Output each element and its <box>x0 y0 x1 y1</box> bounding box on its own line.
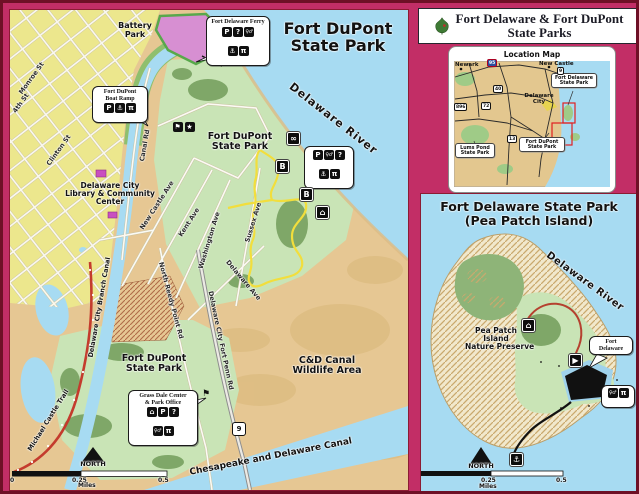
fort-facilities-box: ♀♂π <box>601 385 635 408</box>
fort-callout-line2: Delaware <box>591 346 631 353</box>
scale-05: 0.5 <box>158 478 169 484</box>
wildlife-line2: Wildlife Area <box>282 366 372 376</box>
loc-shield-40: 40 <box>493 85 503 93</box>
restroom-icon: ♀♂ <box>608 388 618 398</box>
ferry-callout-title: Fort Delaware Ferry <box>209 19 267 26</box>
trail-marker-b: B <box>276 160 289 173</box>
info-icon: ? <box>233 27 243 37</box>
historic-site-icons: ⚑★ <box>172 121 195 132</box>
shore-facilities-row2: ⚓π <box>307 168 351 187</box>
loc-label-newark: Newark <box>455 62 479 68</box>
loc-fdu-line1: Fort DuPont <box>521 140 563 145</box>
parking-icon: P <box>104 103 114 113</box>
boat-ramp-icon: ⚓ <box>115 103 125 113</box>
picnic-icon: π <box>239 46 249 56</box>
star-icon: ★ <box>185 122 195 132</box>
picnic-icon: π <box>330 169 340 179</box>
loc-fd-line2: State Park <box>553 81 595 86</box>
scale-bar <box>12 471 167 477</box>
library-label: Delaware City Library & Community Center <box>62 182 158 206</box>
shore-facilities-callout: P♀♂? ⚓π <box>304 146 354 189</box>
loc-label-new-castle: New Castle <box>539 61 574 67</box>
route-9-shield: 9 <box>232 422 246 436</box>
parking-icon: P <box>313 150 323 160</box>
loc-shield-72: 72 <box>481 102 491 110</box>
parking-icon: P <box>222 27 232 37</box>
picnic-icon: π <box>126 103 136 113</box>
parking-icon: P <box>158 407 168 417</box>
info-icon: ? <box>169 407 179 417</box>
loc-fdu-line2: State Park <box>521 145 563 150</box>
park-label-upper: Fort DuPont State Park <box>202 132 278 153</box>
boat-launch-icon: ⚓ <box>319 169 329 179</box>
pea-title-line2: (Pea Patch Island) <box>421 214 637 228</box>
park-label-lower: Fort DuPont State Park <box>106 354 202 375</box>
loc-lums-line1: Lums Pond <box>457 146 493 151</box>
ferry-callout-icons-row1: P?♀♂ <box>209 26 267 45</box>
header-title-line1: Fort Delaware & Fort DuPont <box>456 12 624 26</box>
loc-shield-95: 95 <box>487 59 497 67</box>
shore-facilities-row1: P♀♂? <box>307 149 351 168</box>
restroom-icon: ♀♂ <box>324 150 334 160</box>
battery-park-line2: Park <box>114 31 156 40</box>
scale-0: 0 <box>10 478 14 484</box>
main-map-panel: Fort DuPont State Park Delaware River Ba… <box>9 9 409 491</box>
ferry-icon: ⚓ <box>228 46 238 56</box>
grass-dale-title-line1: Grass Dale Center <box>131 393 195 400</box>
restroom-icon: ♀♂ <box>244 27 254 37</box>
shelter-icon: ⌂ <box>522 319 535 332</box>
battery-park-label: Battery Park <box>114 22 156 39</box>
pea-patch-panel: Fort Delaware State Park (Pea Patch Isla… <box>420 193 638 492</box>
loc-label-delaware-city: Delaware City <box>521 93 557 105</box>
loc-fd-line1: Fort Delaware <box>553 76 595 81</box>
info-icon: ? <box>335 150 345 160</box>
scale-unit: Miles <box>78 483 96 489</box>
pea-title-line1: Fort Delaware State Park <box>421 200 637 214</box>
main-map-title: Fort DuPont State Park <box>268 20 408 55</box>
ferry-callout: Fort Delaware Ferry P?♀♂ ⚓π <box>206 16 270 66</box>
pea-title: Fort Delaware State Park (Pea Patch Isla… <box>421 200 637 227</box>
header-title-line2: State Parks <box>456 26 624 40</box>
restroom-icon: ♀♂ <box>153 426 163 436</box>
main-map-title-line1: Fort DuPont <box>268 20 408 37</box>
header-title: Fort Delaware & Fort DuPont State Parks <box>456 12 624 40</box>
state-park-leaf-icon <box>433 16 451 36</box>
park-lower-line2: State Park <box>106 364 202 374</box>
fort-site-icon: ⌂ <box>316 206 329 219</box>
fort-delaware-callout: Fort Delaware <box>589 336 633 355</box>
wildlife-area-label: C&D Canal Wildlife Area <box>282 356 372 377</box>
grass-dale-callout: Grass Dale Center & Park Office ⌂P? ♀♂π <box>128 390 198 446</box>
flag-icon: ⚑ <box>173 122 183 132</box>
grass-dale-icons-row2: ♀♂π <box>131 425 195 444</box>
loc-callout-lums-pond: Lums Pond State Park <box>455 143 495 158</box>
ferry-callout-icons-row2: ⚓π <box>209 45 267 64</box>
loc-callout-fort-dupont: Fort DuPont State Park <box>519 137 565 152</box>
loc-shield-13: 13 <box>507 135 517 143</box>
north-label: NORTH <box>74 461 112 468</box>
flagpole-icon: ⚑ <box>202 390 210 400</box>
loc-lums-line2: State Park <box>457 151 493 156</box>
location-map-title: Location Map <box>449 50 615 59</box>
loc-shield-9: 9 <box>557 67 564 75</box>
boat-ramp-callout: Fort DuPont Boat Ramp P⚓π <box>92 86 148 123</box>
trail-marker-b: B <box>300 188 313 201</box>
loc-delaware-city-line2: City <box>521 99 557 105</box>
picnic-icon: π <box>619 388 629 398</box>
loc-shield-896: 896 <box>454 103 467 111</box>
map-document: Fort DuPont State Park Delaware River Ba… <box>0 0 639 494</box>
observation-platform-icon: ▶ <box>569 354 582 367</box>
wildlife-viewing-icon: ∞ <box>287 132 300 145</box>
pea-north-label: NORTH <box>465 463 497 470</box>
pea-scale-unit: Miles <box>479 484 497 490</box>
park-upper-line2: State Park <box>202 142 278 152</box>
visitor-center-icon: ⌂ <box>147 407 157 417</box>
nature-preserve-label: Pea Patch Island Nature Preserve <box>465 327 527 351</box>
grass-dale-icons-row1: ⌂P? <box>131 406 195 425</box>
loc-callout-fort-delaware: Fort Delaware State Park <box>551 73 597 88</box>
pea-scale-05: 0.5 <box>556 478 567 484</box>
header-panel: Fort Delaware & Fort DuPont State Parks <box>418 8 638 44</box>
main-map-title-line2: State Park <box>268 37 408 54</box>
boat-ramp-icons: P⚓π <box>95 102 145 121</box>
library-line3: Center <box>62 198 158 206</box>
ferry-dock-icon: ⚓ <box>510 453 523 466</box>
preserve-line3: Nature Preserve <box>465 343 527 351</box>
picnic-icon: π <box>164 426 174 436</box>
location-map-panel: Location Map Newark New Castle <box>448 46 616 193</box>
pea-scale-bar <box>421 471 563 476</box>
